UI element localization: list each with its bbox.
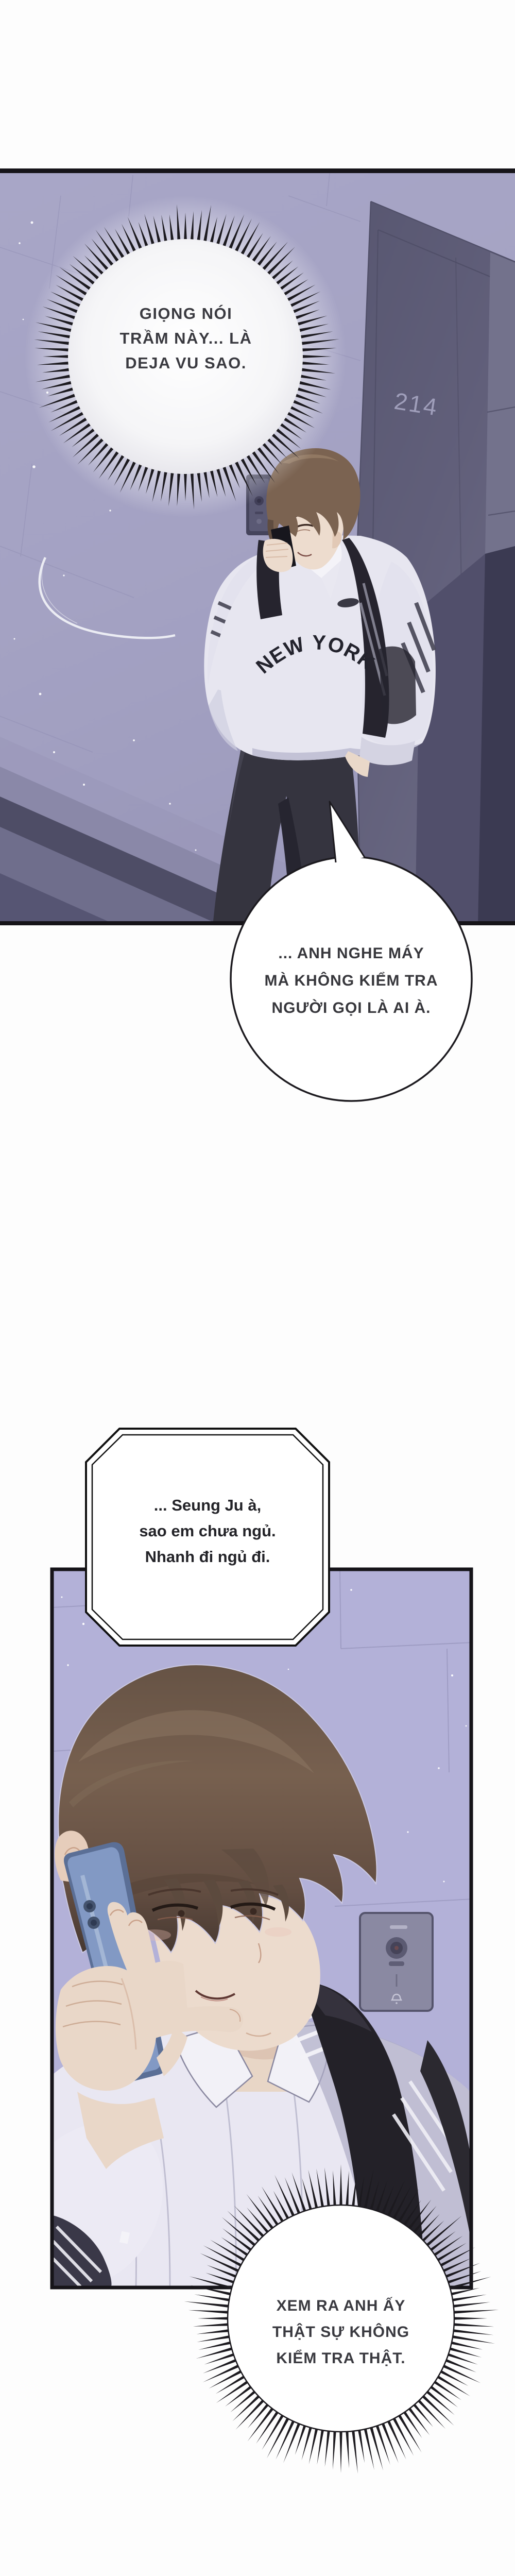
svg-text:... Seung Ju à,: ... Seung Ju à, [154, 1496, 261, 1514]
svg-text:KIỂM TRA THẬT.: KIỂM TRA THẬT. [276, 2349, 405, 2367]
svg-text:TRẦM NÀY... LÀ: TRẦM NÀY... LÀ [120, 329, 252, 347]
svg-text:XEM RA ANH ẤY: XEM RA ANH ẤY [277, 2297, 406, 2314]
svg-text:DEJA VU SAO.: DEJA VU SAO. [125, 354, 247, 372]
svg-text:GIỌNG NÓI: GIỌNG NÓI [140, 304, 233, 323]
svg-text:Nhanh đi ngủ đi.: Nhanh đi ngủ đi. [145, 1548, 270, 1566]
svg-text:sao em chưa ngủ.: sao em chưa ngủ. [139, 1522, 276, 1540]
svg-text:THẬT SỰ KHÔNG: THẬT SỰ KHÔNG [272, 2323, 409, 2341]
svg-text:NGƯỜI GỌI LÀ AI À.: NGƯỜI GỌI LÀ AI À. [271, 999, 431, 1016]
svg-text:... ANH NGHE MÁY: ... ANH NGHE MÁY [278, 944, 424, 962]
svg-text:MÀ KHÔNG KIỂM TRA: MÀ KHÔNG KIỂM TRA [265, 972, 438, 989]
